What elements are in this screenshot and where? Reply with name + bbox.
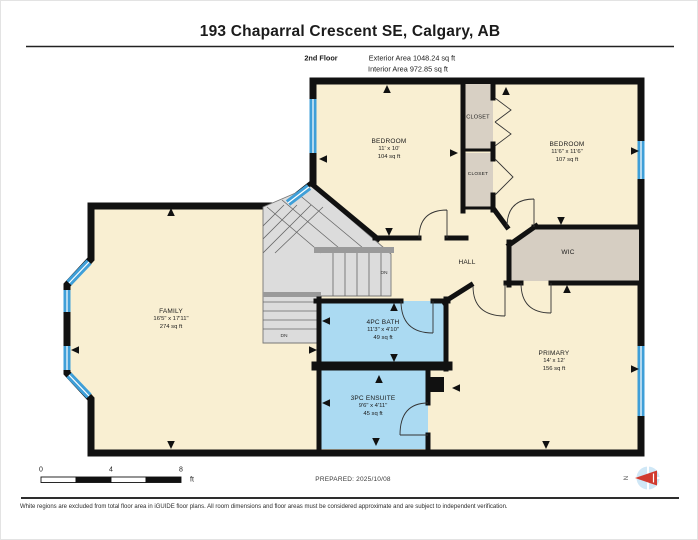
room-label-wic: WIC [561,249,574,257]
stair-landing-edge-2 [263,292,321,297]
room-area: 45 sq ft [351,411,396,419]
room-label-primary: PRIMARY 14' x 12' 156 sq ft [539,350,570,374]
room-dims: 11' x 10' [372,147,407,155]
room-area: 274 sq ft [153,324,188,332]
room-label-hall: HALL [458,259,475,267]
room-area: 156 sq ft [539,366,570,374]
floorplan-page: 193 Chaparral Crescent SE, Calgary, AB 2… [0,0,698,540]
wall-notch [426,377,444,392]
room-label-family: FAMILY 16'5" x 17'11" 274 sq ft [153,308,188,332]
room-name: 4PC BATH [367,319,400,327]
stair-landing-edge [314,247,394,253]
room-dims: 11'6" x 11'6" [550,150,585,158]
compass-icon [635,467,660,490]
room-area: 107 sq ft [550,157,585,165]
room-name: PRIMARY [539,350,570,358]
page-title: 193 Chaparral Crescent SE, Calgary, AB [200,22,501,42]
room-name: BEDROOM [550,141,585,149]
room-dims: 14' x 12' [539,359,570,367]
exterior-area: Exterior Area 1048.24 sq ft [369,53,455,62]
scale-tick-0: 0 [39,465,43,474]
room-label-bedroom-left: BEDROOM 11' x 10' 104 sq ft [372,138,407,162]
room-name: 3PC ENSUITE [351,395,396,403]
room-label-bedroom-right: BEDROOM 11'6" x 11'6" 107 sq ft [550,141,585,165]
room-dims: 9'6" x 4'11" [351,404,396,412]
stairs-dn-label-lower: DN [280,334,287,340]
scale-tick-4: 4 [109,465,113,474]
room-name: BEDROOM [372,138,407,146]
room-dims: 16'5" x 17'11" [153,317,188,325]
room-name: FAMILY [153,308,188,316]
room-label-closet-top: CLOSET [466,114,490,121]
scale-bar [41,477,181,483]
room-label-closet-bottom: CLOSET [468,172,488,178]
prepared-date: PREPARED: 2025/10/08 [315,476,390,484]
room-label-bath: 4PC BATH 11'3" x 4'10" 49 sq ft [367,319,400,343]
scale-tick-8: 8 [179,465,183,474]
compass-north-label: N [623,476,631,481]
floorplan-svg [1,1,698,540]
stairs-dn-label-upper: DN [380,271,387,277]
room-dims: 11'3" x 4'10" [367,328,400,336]
room-area: 49 sq ft [367,335,400,343]
room-area: 104 sq ft [372,154,407,162]
floor-label: 2nd Floor [304,53,337,62]
scale-unit: ft [190,475,194,484]
interior-area: Interior Area 972.85 sq ft [368,64,448,73]
room-label-ensuite: 3PC ENSUITE 9'6" x 4'11" 45 sq ft [351,395,396,419]
disclaimer-text: White regions are excluded from total fl… [20,504,508,510]
